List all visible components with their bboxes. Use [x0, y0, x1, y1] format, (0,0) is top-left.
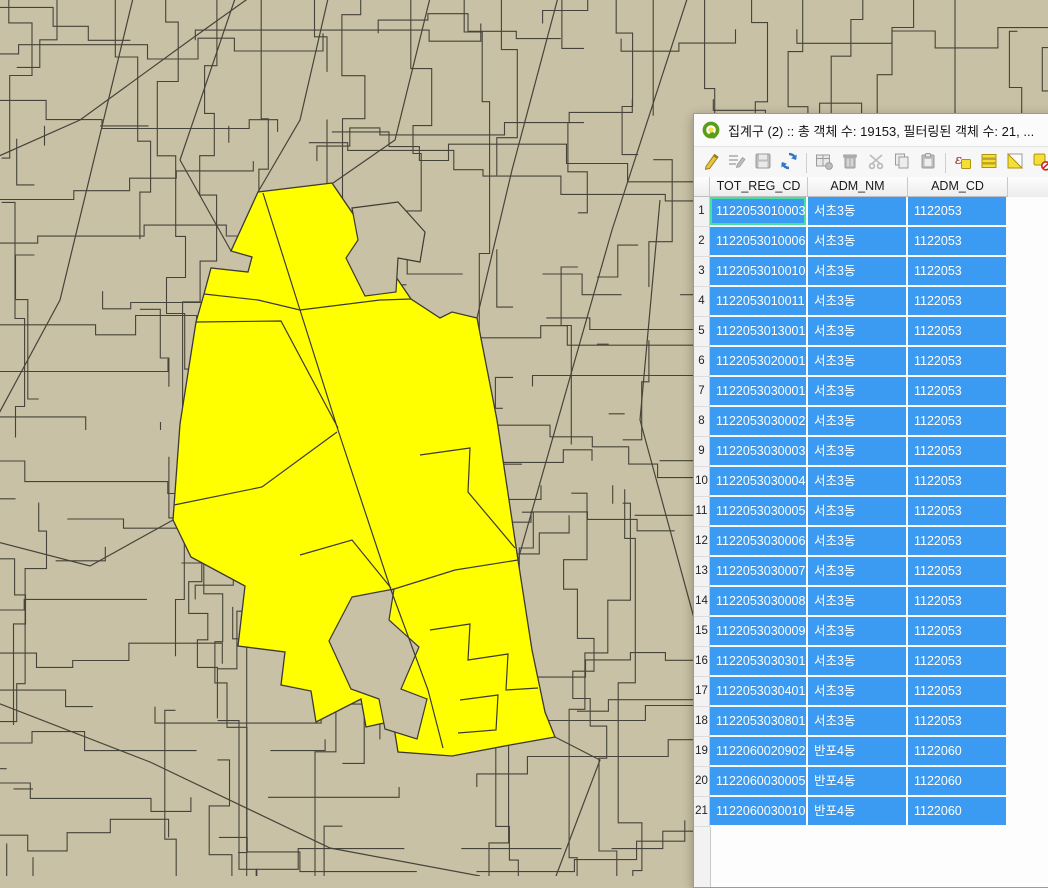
table-cell[interactable]: 서초3동	[808, 557, 908, 587]
row-number[interactable]: 4	[694, 287, 710, 317]
table-cell[interactable]: 서초3동	[808, 587, 908, 617]
invert-selection-button[interactable]	[1002, 150, 1028, 176]
copy-icon	[892, 151, 912, 174]
table-cell[interactable]: 1122053030002	[710, 407, 808, 437]
table-cell[interactable]: 서초3동	[808, 617, 908, 647]
table-cell[interactable]: 1122060030010	[710, 797, 808, 827]
table-row: 191122060020902반포4동1122060	[694, 737, 1048, 767]
new-record-icon	[814, 151, 834, 174]
toolbar: ε	[694, 147, 1048, 179]
table-cell[interactable]: 1122053	[908, 677, 1008, 707]
table-cell[interactable]: 1122053	[908, 227, 1008, 257]
add-feature-button	[811, 150, 837, 176]
header-corner	[694, 177, 710, 197]
table-cell[interactable]: 1122053	[908, 257, 1008, 287]
qgis-logo-icon	[702, 121, 720, 139]
table-cell[interactable]: 1122053030301	[710, 647, 808, 677]
table-header-row: TOT_REG_CDADM_NMADM_CD	[694, 177, 1048, 197]
table-row: 71122053030001서초3동1122053	[694, 377, 1048, 407]
reload-table-button[interactable]	[776, 150, 802, 176]
table-cell[interactable]: 1122060	[908, 797, 1008, 827]
table-cell[interactable]: 서초3동	[808, 707, 908, 737]
table-cell[interactable]: 1122053030001	[710, 377, 808, 407]
table-cell[interactable]: 1122053	[908, 707, 1008, 737]
row-number[interactable]: 2	[694, 227, 710, 257]
table-cell[interactable]: 1122053030008	[710, 587, 808, 617]
paste-icon	[918, 151, 938, 174]
row-number[interactable]: 13	[694, 557, 710, 587]
save-edits-button	[750, 150, 776, 176]
row-number[interactable]: 16	[694, 647, 710, 677]
row-number[interactable]: 3	[694, 257, 710, 287]
table-row: 171122053030401서초3동1122053	[694, 677, 1048, 707]
focused-cell[interactable]: 1122053010003	[710, 197, 808, 227]
table-cell[interactable]: 1122053	[908, 377, 1008, 407]
table-row: 161122053030301서초3동1122053	[694, 647, 1048, 677]
table-row: 111122053030005서초3동1122053	[694, 497, 1048, 527]
table-cell[interactable]: 1122053	[908, 587, 1008, 617]
table-cell[interactable]: 서초3동	[808, 527, 908, 557]
table-row: 81122053030002서초3동1122053	[694, 407, 1048, 437]
table-cell[interactable]: 1122053030003	[710, 437, 808, 467]
table-cell[interactable]: 1122053	[908, 317, 1008, 347]
table-cell[interactable]: 서초3동	[808, 407, 908, 437]
row-number[interactable]: 17	[694, 677, 710, 707]
select-all-button[interactable]	[976, 150, 1002, 176]
table-cell[interactable]: 서초3동	[808, 317, 908, 347]
multi-edit-button	[724, 150, 750, 176]
table-cell[interactable]: 1122060	[908, 767, 1008, 797]
table-cell[interactable]: 1122053020001	[710, 347, 808, 377]
paste-features-button	[915, 150, 941, 176]
table-cell[interactable]: 1122053	[908, 497, 1008, 527]
trash-icon	[840, 151, 860, 174]
table-row: 41122053010011서초3동1122053	[694, 287, 1048, 317]
table-cell[interactable]: 1122053013001	[710, 317, 808, 347]
row-number[interactable]: 14	[694, 587, 710, 617]
column-header-adm_nm[interactable]: ADM_NM	[808, 177, 908, 197]
table-cell[interactable]: 반포4동	[808, 797, 908, 827]
row-number[interactable]: 18	[694, 707, 710, 737]
table-cell[interactable]: 1122053010006	[710, 227, 808, 257]
row-number[interactable]: 21	[694, 797, 710, 827]
table-cell[interactable]: 서초3동	[808, 197, 908, 227]
svg-text:ε: ε	[955, 153, 962, 168]
table-row: 11122053010003서초3동1122053	[694, 197, 1048, 227]
table-row: 91122053030003서초3동1122053	[694, 437, 1048, 467]
cut-features-button	[863, 150, 889, 176]
table-cell[interactable]: 1122053	[908, 287, 1008, 317]
table-cell[interactable]: 1122053030401	[710, 677, 808, 707]
table-cell[interactable]: 서초3동	[808, 347, 908, 377]
table-cell[interactable]: 1122053	[908, 197, 1008, 227]
row-number-gutter	[694, 827, 711, 887]
row-number[interactable]: 5	[694, 317, 710, 347]
table-row: 121122053030006서초3동1122053	[694, 527, 1048, 557]
table-cell[interactable]: 1122060020902	[710, 737, 808, 767]
toolbar-separator	[945, 153, 946, 173]
table-row: 201122060030005반포4동1122060	[694, 767, 1048, 797]
table-cell[interactable]: 1122053030009	[710, 617, 808, 647]
table-row: 141122053030008서초3동1122053	[694, 587, 1048, 617]
row-number[interactable]: 1	[694, 197, 710, 227]
table-cell[interactable]: 1122053030006	[710, 527, 808, 557]
table-row: 131122053030007서초3동1122053	[694, 557, 1048, 587]
table-cell[interactable]: 1122060	[908, 737, 1008, 767]
table-row: 61122053020001서초3동1122053	[694, 347, 1048, 377]
window-title: 집계구 (2) :: 총 객체 수: 19153, 필터링된 객체 수: 21,…	[728, 121, 1034, 140]
row-number[interactable]: 12	[694, 527, 710, 557]
select-by-expression-button[interactable]: ε	[950, 150, 976, 176]
table-cell[interactable]: 서초3동	[808, 257, 908, 287]
table-cell[interactable]: 1122053030004	[710, 467, 808, 497]
row-number[interactable]: 7	[694, 377, 710, 407]
row-number[interactable]: 8	[694, 407, 710, 437]
table-cell[interactable]: 서초3동	[808, 497, 908, 527]
column-header-adm_cd[interactable]: ADM_CD	[908, 177, 1008, 197]
table-cell[interactable]: 1122053	[908, 407, 1008, 437]
window-titlebar[interactable]: 집계구 (2) :: 총 객체 수: 19153, 필터링된 객체 수: 21,…	[694, 114, 1048, 147]
row-number[interactable]: 6	[694, 347, 710, 377]
table-cell[interactable]: 서초3동	[808, 437, 908, 467]
table-cell[interactable]: 서초3동	[808, 287, 908, 317]
toggle-editing-button[interactable]	[698, 150, 724, 176]
row-number[interactable]: 15	[694, 617, 710, 647]
table-cell[interactable]: 서초3동	[808, 377, 908, 407]
table-row: 211122060030010반포4동1122060	[694, 797, 1048, 827]
deselect-all-button[interactable]	[1028, 150, 1048, 176]
table-cell[interactable]: 1122053010010	[710, 257, 808, 287]
row-number[interactable]: 9	[694, 437, 710, 467]
toolbar-separator	[806, 153, 807, 173]
table-cell[interactable]: 1122053	[908, 467, 1008, 497]
table-cell[interactable]: 1122053030005	[710, 497, 808, 527]
invert-selection-icon	[1005, 151, 1025, 174]
table-cell[interactable]: 서초3동	[808, 677, 908, 707]
table-cell[interactable]: 1122053	[908, 347, 1008, 377]
table-row: 31122053010010서초3동1122053	[694, 257, 1048, 287]
table-cell[interactable]: 서초3동	[808, 647, 908, 677]
row-number[interactable]: 20	[694, 767, 710, 797]
table-cell[interactable]: 1122053010011	[710, 287, 808, 317]
table-cell[interactable]: 1122053	[908, 557, 1008, 587]
attribute-table: TOT_REG_CDADM_NMADM_CD 11122053010003서초3…	[694, 177, 1048, 887]
row-number[interactable]: 10	[694, 467, 710, 497]
delete-selected-button	[837, 150, 863, 176]
row-number[interactable]: 11	[694, 497, 710, 527]
save-icon	[753, 151, 773, 174]
table-cell[interactable]: 반포4동	[808, 767, 908, 797]
pencil-icon	[701, 151, 721, 174]
table-cell[interactable]: 서초3동	[808, 227, 908, 257]
table-row: 21122053010006서초3동1122053	[694, 227, 1048, 257]
table-cell[interactable]: 1122053	[908, 647, 1008, 677]
table-cell[interactable]: 1122053	[908, 617, 1008, 647]
copy-features-button	[889, 150, 915, 176]
table-cell[interactable]: 1122053	[908, 527, 1008, 557]
table-row: 51122053013001서초3동1122053	[694, 317, 1048, 347]
attribute-table-window: 집계구 (2) :: 총 객체 수: 19153, 필터링된 객체 수: 21,…	[693, 113, 1048, 888]
table-cell[interactable]: 1122060030005	[710, 767, 808, 797]
table-cell[interactable]: 1122053030801	[710, 707, 808, 737]
epsilon-select-icon: ε	[953, 151, 973, 174]
column-header-tot_reg_cd[interactable]: TOT_REG_CD	[710, 177, 808, 197]
table-cell[interactable]: 서초3동	[808, 467, 908, 497]
refresh-icon	[779, 151, 799, 174]
table-cell[interactable]: 1122053030007	[710, 557, 808, 587]
row-number[interactable]: 19	[694, 737, 710, 767]
multi-pencil-icon	[727, 151, 747, 174]
scissors-icon	[866, 151, 886, 174]
table-row: 151122053030009서초3동1122053	[694, 617, 1048, 647]
select-all-icon	[979, 151, 999, 174]
table-cell[interactable]: 1122053	[908, 437, 1008, 467]
table-row: 101122053030004서초3동1122053	[694, 467, 1048, 497]
deselect-icon	[1031, 151, 1048, 174]
table-row: 181122053030801서초3동1122053	[694, 707, 1048, 737]
table-cell[interactable]: 반포4동	[808, 737, 908, 767]
